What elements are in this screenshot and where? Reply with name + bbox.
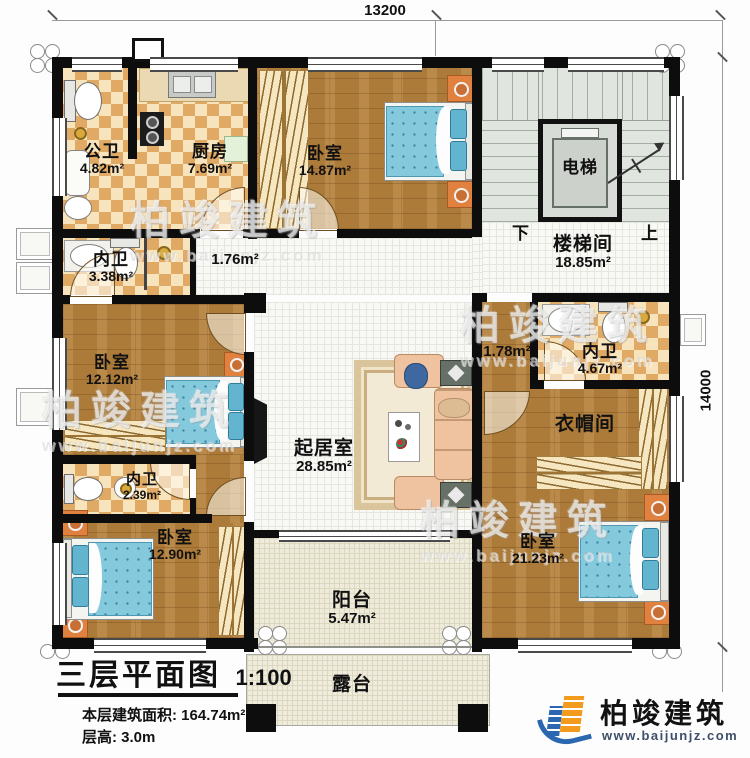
flower-decor (396, 438, 408, 450)
room-name: 公卫 (62, 142, 142, 161)
window-sill (680, 314, 706, 346)
pillow (72, 545, 89, 575)
balcony-rail (254, 646, 472, 648)
wall-segment (337, 229, 472, 238)
window-sill (16, 262, 54, 294)
room-label-hall-small: 1.76m² (195, 252, 275, 269)
room-label-ensuite-right: 内卫 4.67m² (560, 342, 640, 377)
kitchen-sink-icon (168, 70, 216, 98)
room-label-ensuite-lower: 内卫 2.39m² (100, 472, 184, 502)
cloakroom-rack (536, 456, 642, 490)
drain-icon (157, 246, 171, 260)
window (52, 543, 67, 625)
wall-segment (584, 380, 680, 389)
person-figure (438, 398, 470, 418)
window (308, 57, 422, 72)
pillow (450, 109, 467, 139)
room-area: 1.78m² (467, 344, 547, 361)
elevator-label: 电梯 (538, 158, 622, 177)
toilet-icon (602, 311, 626, 343)
window (492, 57, 544, 72)
floor-height-text: 层高: 3.0m (82, 726, 155, 747)
room-name: 内卫 (71, 250, 151, 269)
room-area: 4.67m² (560, 361, 640, 377)
pillow (228, 383, 244, 411)
company-logo: 柏竣建筑 www.baijunjz.com (538, 692, 748, 752)
wall-segment (532, 293, 680, 302)
wall-segment (112, 295, 253, 304)
wall-segment (530, 380, 544, 389)
elevator-slot (561, 128, 599, 138)
title-underline (58, 693, 238, 697)
logo-website: www.baijunjz.com (602, 728, 738, 743)
tv-icon (254, 398, 267, 464)
side-table (440, 482, 472, 508)
room-area: 28.85m² (276, 459, 372, 476)
window (72, 57, 122, 72)
bed-headboard (660, 522, 669, 601)
wall-segment (190, 455, 196, 469)
nightstand (644, 598, 672, 625)
room-name: 厨房 (172, 142, 248, 161)
room-label-bedroom-bottom-right: 卧室 21.23m² (490, 532, 586, 567)
room-label-ensuite-left: 内卫 3.38m² (71, 250, 151, 285)
room-area: 5.47m² (304, 611, 400, 628)
floor-plan-canvas: 13200 14000 电梯 下 上 (0, 0, 750, 758)
window (568, 57, 664, 72)
elevator-name: 电梯 (538, 158, 622, 177)
room-label-public-bath: 公卫 4.82m² (62, 142, 142, 177)
side-table (440, 360, 472, 386)
wall-segment (448, 530, 474, 538)
dimension-line-right (722, 20, 723, 692)
wall-segment (243, 229, 299, 238)
wall-segment (472, 57, 482, 237)
room-name: 内卫 (100, 472, 184, 489)
stair-landing-line (538, 68, 539, 121)
wardrobe-rack (64, 420, 166, 452)
room-label-cloakroom: 衣帽间 (537, 414, 633, 435)
faucet-icon (74, 127, 87, 140)
logo-company-name: 柏竣建筑 (600, 692, 728, 732)
rail-post (442, 626, 457, 641)
plan-title: 三层平面图 (56, 650, 221, 694)
room-name: 衣帽间 (537, 414, 633, 435)
pillow (72, 577, 89, 607)
room-label-stairwell: 楼梯间 18.85m² (523, 234, 643, 272)
wall-segment (244, 293, 266, 313)
wall-segment (52, 455, 192, 464)
room-name: 卧室 (64, 353, 160, 372)
nightstand (644, 494, 672, 521)
room-area: 21.23m² (490, 551, 586, 567)
room-name: 阳台 (304, 590, 400, 611)
nightstand (447, 181, 474, 208)
dimension-line-top (52, 20, 722, 21)
room-area: 1.76m² (195, 252, 275, 269)
wall-segment (530, 302, 538, 380)
nightstand (447, 75, 474, 102)
room-area: 3.38m² (71, 269, 151, 285)
wall-segment (248, 57, 257, 239)
room-area: 12.90m² (127, 547, 223, 563)
stair-landing-line (622, 68, 623, 121)
window-sill (16, 228, 54, 260)
corner-ornament (30, 44, 45, 59)
room-area: 4.82m² (62, 161, 142, 177)
floor-hall-gap (472, 237, 482, 294)
sink-icon (548, 307, 584, 333)
dimension-tick (431, 10, 442, 21)
dimension-height-text: 14000 (698, 369, 715, 411)
dimension-width-label: 13200 (340, 2, 430, 19)
room-name: 卧室 (277, 144, 373, 163)
corner-ornament (30, 58, 45, 73)
wall-segment (244, 352, 254, 461)
room-label-living: 起居室 28.85m² (276, 438, 372, 476)
room-area: 14.87m² (277, 163, 373, 179)
sink-icon (64, 196, 92, 220)
room-name: 楼梯间 (523, 234, 643, 255)
armchair (394, 476, 444, 510)
balcony-slider-window (279, 530, 450, 542)
room-label-kitchen: 厨房 7.69m² (172, 142, 248, 177)
plan-scale: 1:100 (235, 665, 291, 691)
title-block: 三层平面图 1:100 本层建筑面积: 164.74m² 层高: 3.0m (56, 650, 356, 750)
room-name: 内卫 (560, 342, 640, 361)
toilet-icon (74, 82, 102, 120)
room-label-bedroom-top: 卧室 14.87m² (277, 144, 373, 179)
window (518, 638, 632, 653)
room-name: 卧室 (490, 532, 586, 551)
bed-mattress (166, 380, 220, 444)
stair-up-label: 上 (641, 219, 658, 244)
dimension-tick (715, 10, 726, 21)
room-area: 12.12m² (64, 372, 160, 388)
pillow (228, 412, 244, 440)
wall-segment (52, 229, 200, 238)
table-decor (405, 424, 411, 430)
rail-post (272, 626, 287, 641)
dimension-height-label: 14000 (676, 360, 736, 420)
wall-segment (244, 522, 254, 652)
table-decor (395, 420, 402, 427)
floor-area-text: 本层建筑面积: 164.74m² (82, 704, 245, 725)
stair-treads-upper (482, 68, 669, 121)
room-label-hall-right: 1.78m² (467, 344, 547, 361)
wall-segment (52, 295, 70, 304)
bed-sheet (214, 381, 227, 441)
coffee-table (388, 412, 420, 462)
pillow (450, 141, 467, 171)
stair-treads-right (622, 121, 669, 222)
window-sill (16, 388, 54, 426)
room-area: 18.85m² (523, 255, 643, 272)
room-area: 7.69m² (172, 161, 248, 177)
rail-post (258, 626, 273, 641)
shower-icon (636, 310, 650, 324)
room-name: 起居室 (276, 438, 372, 459)
dimension-tick (47, 10, 58, 21)
pillow (642, 560, 659, 590)
toilet-icon (73, 477, 103, 501)
cloakroom-rack (638, 388, 668, 490)
wall-segment (253, 530, 281, 538)
rail-post (456, 626, 471, 641)
logo-building-icon (538, 692, 594, 750)
terrace-post (458, 704, 488, 732)
bed-sheet (436, 107, 450, 174)
window (150, 57, 238, 72)
window (669, 96, 684, 180)
room-label-balcony: 阳台 5.47m² (304, 590, 400, 628)
wall-segment (52, 514, 212, 523)
room-label-bedroom-bottom-left: 卧室 12.90m² (127, 528, 223, 563)
room-area: 2.39m² (100, 489, 184, 502)
stove-icon (140, 112, 164, 146)
person-figure (404, 363, 428, 389)
stair-treads-left (482, 121, 538, 222)
pillow (642, 528, 659, 558)
room-label-bedroom-left: 卧室 12.12m² (64, 353, 160, 388)
room-name: 卧室 (127, 528, 223, 547)
dimension-witness-line (435, 20, 436, 56)
